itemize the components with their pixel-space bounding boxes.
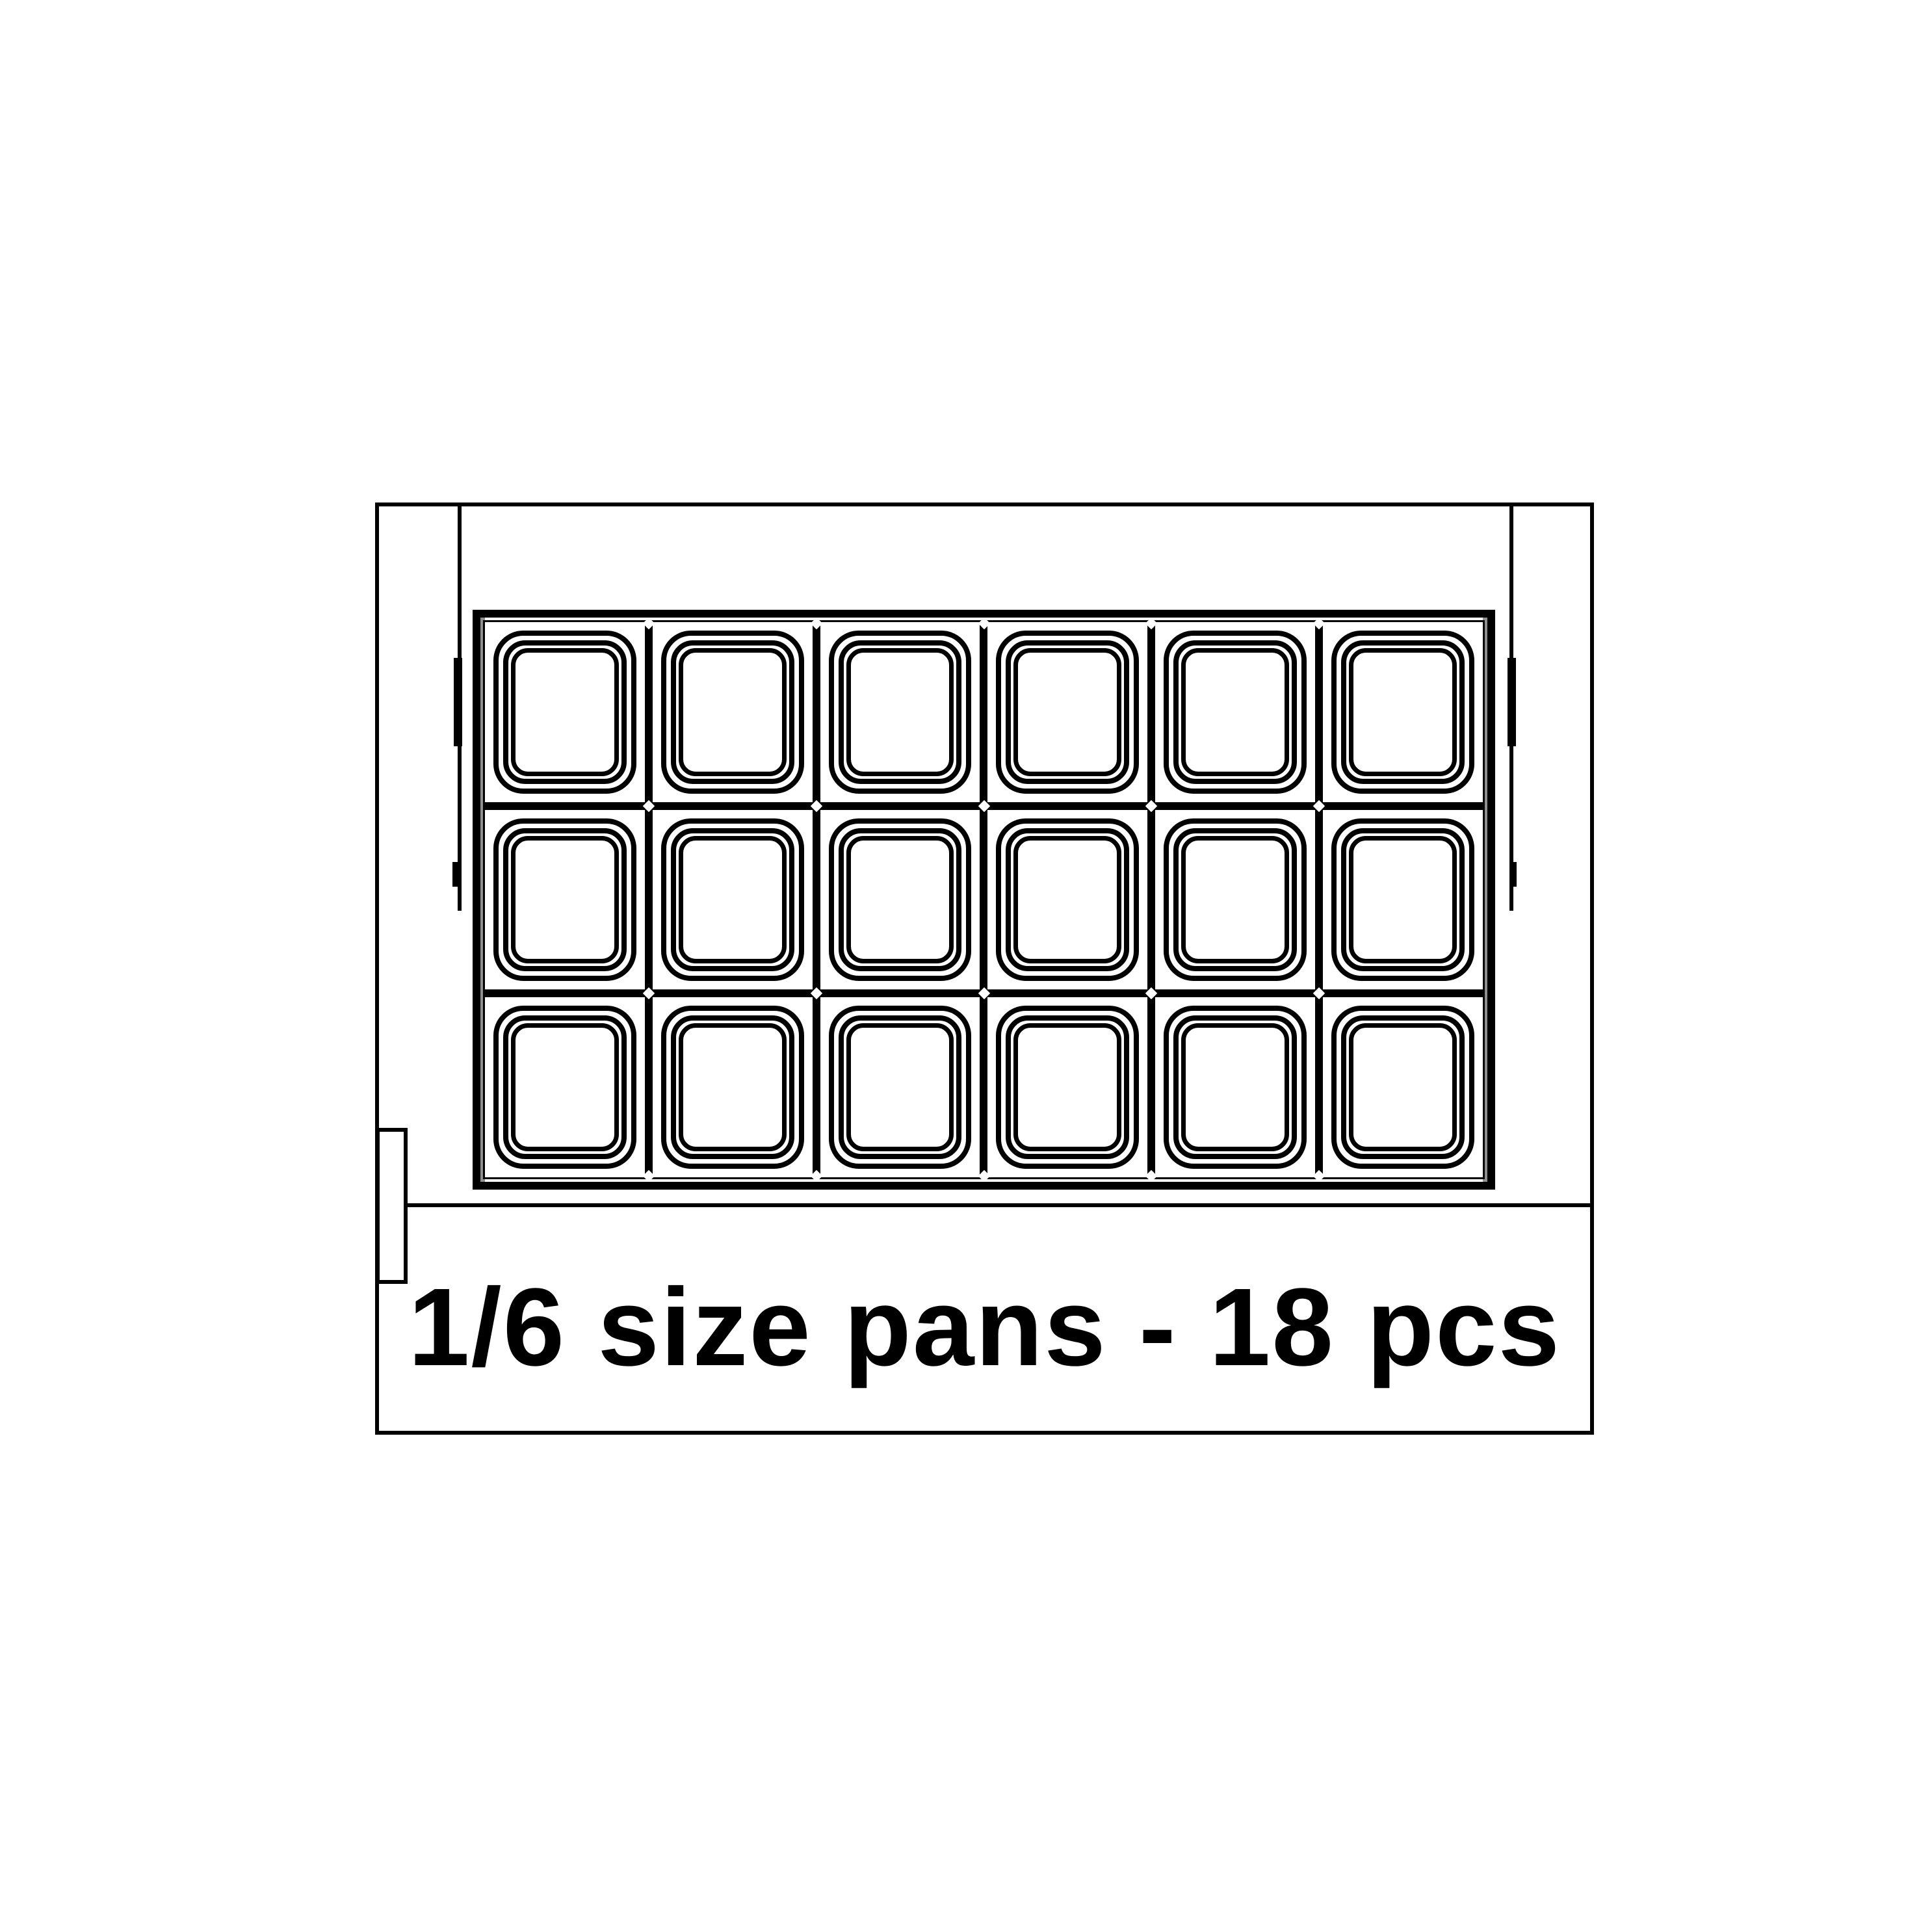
pan-opening — [511, 1023, 619, 1151]
pan-outer-rim — [996, 1006, 1139, 1169]
pan-inner-rim — [1341, 828, 1465, 972]
pan-cell — [653, 810, 813, 990]
pan-outer-rim — [829, 631, 972, 794]
pan-cell — [1155, 810, 1315, 990]
pan-outer-rim — [829, 818, 972, 982]
pan-inner-rim — [503, 1015, 627, 1159]
pan-opening — [1181, 1023, 1289, 1151]
pan-outer-rim — [493, 818, 636, 982]
pan-opening — [679, 1023, 787, 1151]
pan-cell — [1323, 810, 1483, 990]
pan-opening — [1349, 836, 1457, 964]
pan-inner-rim — [1173, 640, 1297, 784]
pan-outer-rim — [1164, 631, 1307, 794]
pan-inner-rim — [839, 828, 962, 972]
diagram-canvas: 1/6 size pans - 18 pcs — [0, 0, 1932, 1932]
pan-cell — [653, 622, 813, 802]
pan-opening — [679, 648, 787, 776]
pan-inner-rim — [503, 828, 627, 972]
pan-outer-rim — [1331, 1006, 1474, 1169]
pan-cell — [1155, 997, 1315, 1177]
pan-inner-rim — [839, 1015, 962, 1159]
pan-inner-rim — [1341, 640, 1465, 784]
pan-inner-rim — [1173, 1015, 1297, 1159]
pan-outer-rim — [996, 631, 1139, 794]
pan-inner-rim — [1006, 1015, 1129, 1159]
pan-opening — [846, 836, 954, 964]
pan-grid — [485, 622, 1483, 1177]
pan-inner-rim — [671, 1015, 794, 1159]
pan-outer-rim — [661, 1006, 804, 1169]
pan-inner-rim — [671, 640, 794, 784]
left-side-tab — [376, 1128, 408, 1284]
pan-opening — [679, 836, 787, 964]
pan-opening — [511, 648, 619, 776]
pan-outer-rim — [661, 818, 804, 982]
pan-cell — [485, 622, 645, 802]
pan-inner-rim — [671, 828, 794, 972]
pan-outer-rim — [1331, 818, 1474, 982]
pan-outer-rim — [829, 1006, 972, 1169]
pan-cell — [820, 622, 980, 802]
caption-label: 1/6 size pans - 18 pcs — [408, 1264, 1561, 1391]
pan-outer-rim — [661, 631, 804, 794]
pan-cell — [820, 997, 980, 1177]
pan-inner-rim — [1006, 640, 1129, 784]
pan-cell — [987, 810, 1147, 990]
pan-opening — [1013, 1023, 1121, 1151]
pan-opening — [1181, 648, 1289, 776]
pan-cell — [653, 997, 813, 1177]
pan-cell — [485, 810, 645, 990]
pan-opening — [846, 648, 954, 776]
pan-inner-rim — [1341, 1015, 1465, 1159]
pan-opening — [1013, 836, 1121, 964]
pan-cell — [987, 622, 1147, 802]
right-hinge-mark — [1508, 658, 1516, 746]
pan-opening — [1181, 836, 1289, 964]
left-hinge-mark — [454, 658, 462, 746]
pan-outer-rim — [1164, 818, 1307, 982]
pan-opening — [1349, 1023, 1457, 1151]
pan-cell — [485, 997, 645, 1177]
pan-inner-rim — [1006, 828, 1129, 972]
pan-opening — [511, 836, 619, 964]
pan-opening — [846, 1023, 954, 1151]
pan-cell — [1323, 997, 1483, 1177]
pan-outer-rim — [493, 631, 636, 794]
pan-cell — [1323, 622, 1483, 802]
caption-band: 1/6 size pans - 18 pcs — [379, 1207, 1590, 1431]
right-rail-tick-mark — [1511, 862, 1517, 887]
pan-cell — [987, 997, 1147, 1177]
pan-cell — [820, 810, 980, 990]
pan-inner-rim — [503, 640, 627, 784]
pan-inner-rim — [839, 640, 962, 784]
pan-opening — [1013, 648, 1121, 776]
pan-outer-rim — [996, 818, 1139, 982]
pan-inner-rim — [1173, 828, 1297, 972]
pan-outer-rim — [1331, 631, 1474, 794]
pan-cell — [1155, 622, 1315, 802]
left-rail-tick-mark — [452, 862, 458, 887]
pan-outer-rim — [1164, 1006, 1307, 1169]
pan-opening — [1349, 648, 1457, 776]
pan-outer-rim — [493, 1006, 636, 1169]
